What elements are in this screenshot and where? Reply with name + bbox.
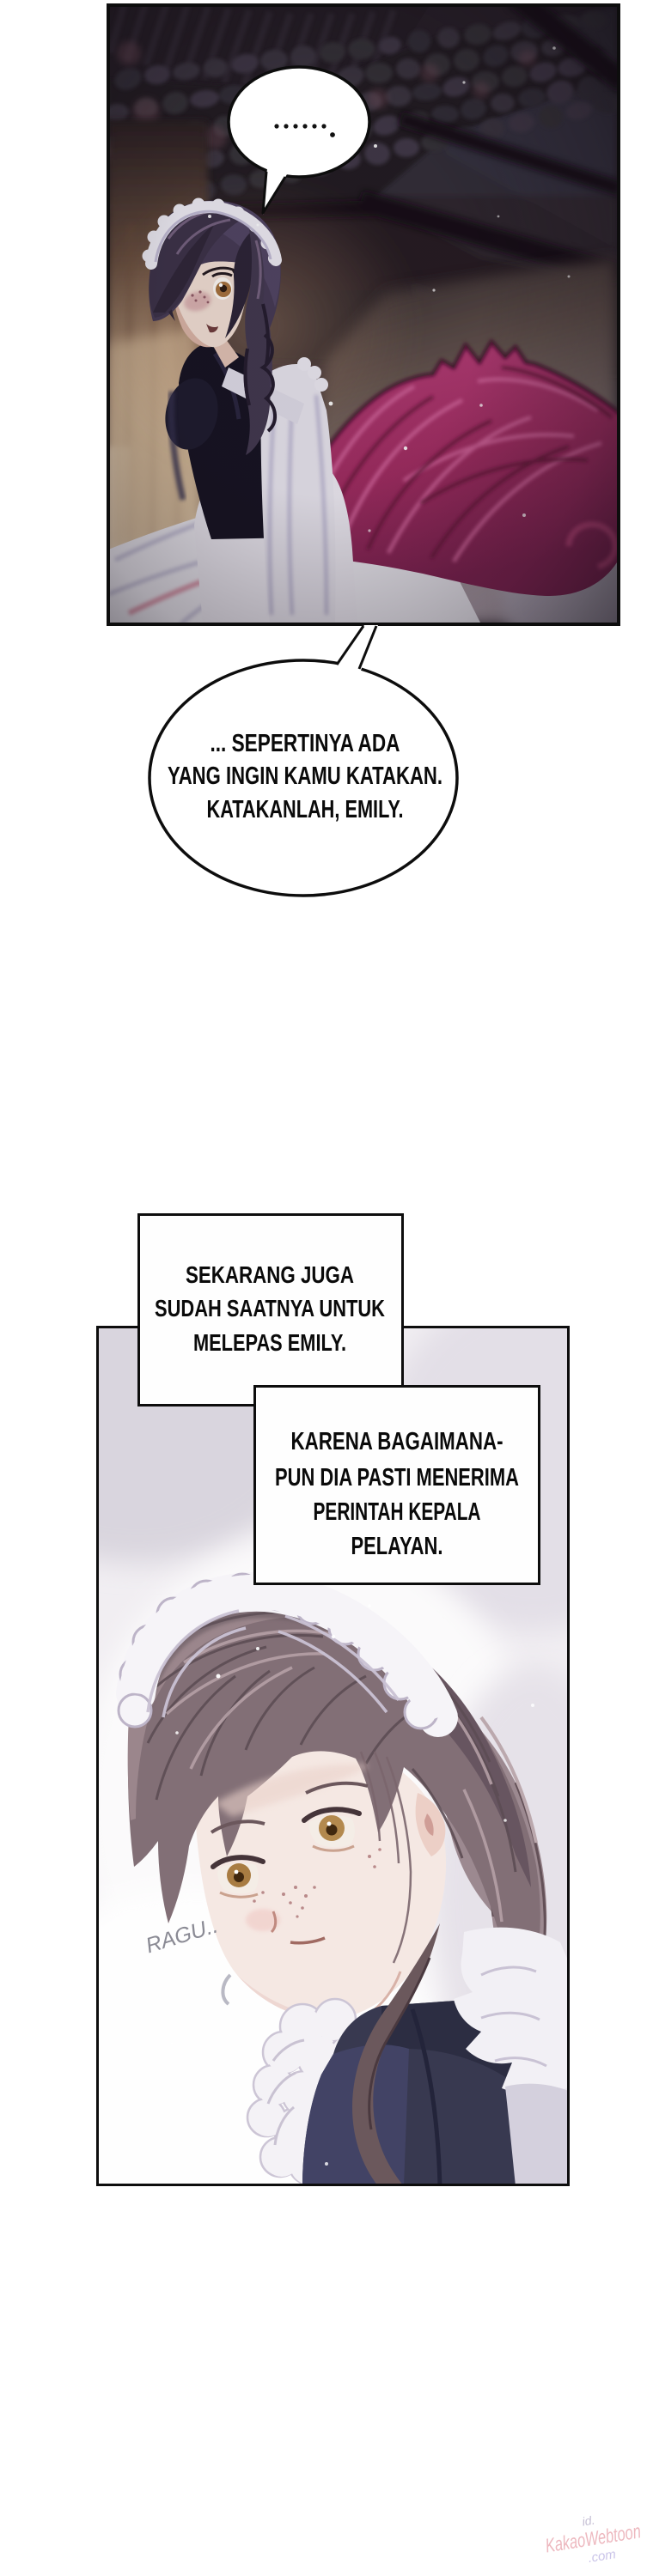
svg-text:MELEPAS EMILY.: MELEPAS EMILY.: [193, 1329, 346, 1356]
svg-text:PERINTAH KEPALA: PERINTAH KEPALA: [314, 1498, 481, 1526]
svg-text:SEKARANG JUGA: SEKARANG JUGA: [186, 1261, 354, 1288]
svg-text:SUDAH SAATNYA UNTUK: SUDAH SAATNYA UNTUK: [155, 1295, 385, 1321]
svg-text:PELAYAN.: PELAYAN.: [351, 1533, 443, 1560]
svg-text:.com: .com: [587, 2547, 617, 2566]
svg-text:YANG INGIN KAMU KATAKAN.: YANG INGIN KAMU KATAKAN.: [168, 762, 442, 790]
svg-text:KATAKANLAH, EMILY.: KATAKANLAH, EMILY.: [207, 796, 404, 823]
svg-text:... SEPERTINYA ADA: ... SEPERTINYA ADA: [211, 730, 400, 757]
svg-text:PUN DIA PASTI MENERIMA: PUN DIA PASTI MENERIMA: [275, 1464, 519, 1492]
svg-text:KARENA BAGAIMANA-: KARENA BAGAIMANA-: [291, 1428, 503, 1455]
